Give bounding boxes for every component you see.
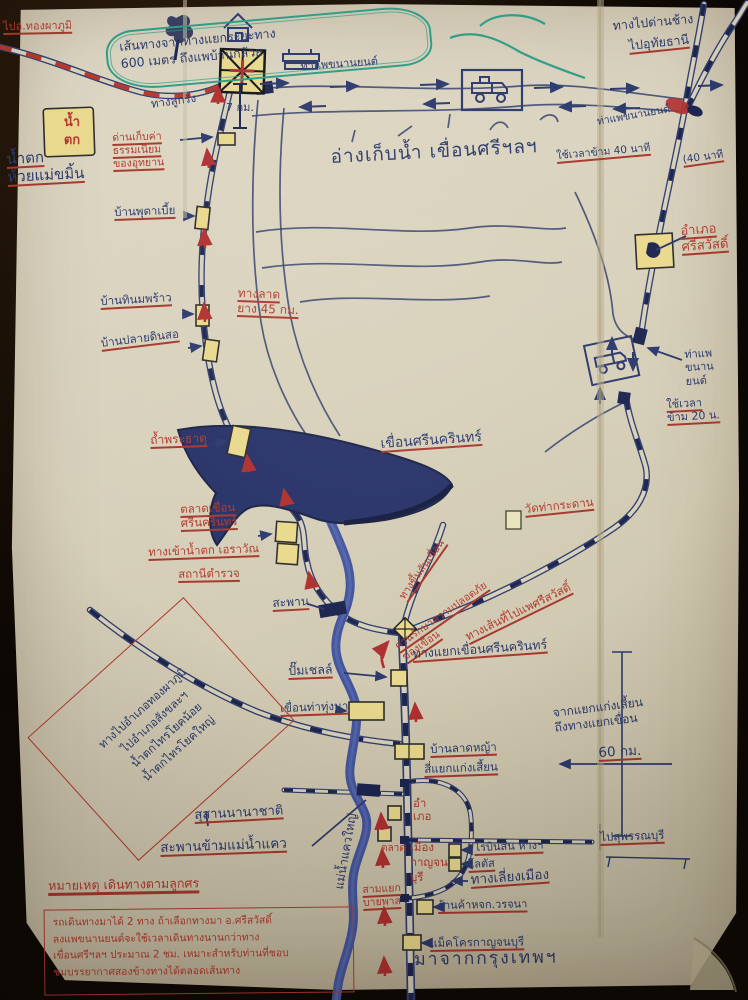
label-ferry-time-40b: (40 นาที — [682, 148, 724, 166]
label-kwai-bridge: สะพานข้ามแม่น้ำแคว — [160, 836, 287, 857]
label-dam-crest-road: ทางขึ้นสันเขื่อน — [397, 537, 448, 602]
label-to-danchang: ทางไปด่านช้าง — [612, 11, 694, 33]
label-bridge: สะพาน — [272, 594, 309, 611]
map-labels: ไปอ.ทองผาภูมิ เส้นทางจากทางแยกระยะทาง 60… — [0, 0, 748, 1000]
label-cave: ถ้ำพระธาตุ — [150, 431, 207, 448]
label-village-1: บ้านพุตาเบี้ย — [114, 203, 176, 219]
label-dam-name: เขื่อนศรีนครินทร์ — [380, 429, 482, 453]
label-mueang-kanchanaburi: เมือง กาญจน บุรี — [410, 840, 448, 885]
label-fee-checkpoint: ด่านเก็บค่า ธรรมเนียม ของอุทยาน — [112, 130, 164, 170]
label-paved-45km: ทางลาด ยาง 45 กม. — [237, 286, 300, 317]
label-city-market: ตลาด — [381, 843, 406, 855]
label-to-thongphaphum: ไปอ.ทองผาภูมิ — [3, 19, 72, 34]
label-village-3: บ้านปลายดินสอ — [100, 326, 180, 349]
label-cemetery: สุสานนานาชาติ — [194, 803, 284, 823]
label-7km: 7 กม. — [226, 101, 254, 114]
label-ban-latya: บ้านลาดหญ้า — [430, 740, 497, 756]
label-waterfall-sign: น้ำ ตก — [52, 114, 92, 149]
label-thathungna-dam: เขื่อนท่าทุ่งนา — [280, 699, 349, 715]
west-destinations-sign: ทางไปอำเภอทองผาภูมิ ไปอำเภอสังขละฯ น้ำตก… — [27, 597, 294, 861]
label-to-uthai: ไปอุทัยธานี — [628, 32, 690, 53]
label-erawan-entrance: ทางเข้าน้ำตก เอราวัณ — [148, 541, 259, 559]
label-police-station: สถานีตำรวจ — [178, 566, 240, 581]
label-ferry-pier-lower-east: ท่าแพ ขนาน ยนต์ — [684, 346, 715, 388]
label-river-name: แม่น้ำแควใหญ่ — [332, 812, 360, 890]
label-district-office: อำ เภอ — [413, 797, 431, 822]
label-waterfall-name: น้ำตก ห้วยแม่ขมิ้น — [6, 146, 85, 187]
label-robinson: โรบินสัน ห้างฯ — [474, 839, 543, 855]
label-distance-note: จากแยกแก่งเสี้ยน ถึงทางแยกเขื่อน — [552, 695, 645, 735]
label-dam-market: ตลาดเขื่อน ศรีนครินทร์ — [180, 500, 238, 530]
label-route-note: เส้นทางจากทางแยกระยะทาง 600 เมตร ถึงแพบ้… — [119, 25, 278, 72]
label-reservoir-title: อ่างเก็บน้ำ เขื่อนศรีฯลฯ — [330, 135, 538, 169]
label-from-bangkok: มาจากกรุงเทพฯ — [414, 947, 558, 971]
label-to-suphanburi: ไปสุพรรณบุรี — [600, 828, 665, 844]
label-sisawat-district: อำเภอ ศรีสวัสดิ์ — [680, 221, 729, 256]
label-kaengsian-intersection: สี่แยกแก่งเสี้ยน — [424, 759, 498, 776]
label-worajana-shop: ร้านค้าหจก.วรจนา — [438, 897, 527, 912]
label-distance-60km: 60 กม. — [598, 743, 642, 762]
label-ferry-time-20: ใช้เวลา ข้าม 20 น. — [666, 395, 720, 425]
label-wat-thakradan: วัดท่ากระดาน — [524, 495, 594, 516]
label-lotus: โลตัส — [468, 857, 495, 872]
label-ferry-pier-upper-east: ท่าแพขนานยนต์ — [596, 103, 671, 128]
label-gravel-road: ทางลูกรัง — [150, 91, 197, 111]
label-note-title: หมายเหตุ เดินทางตามลูกศร — [48, 875, 199, 896]
label-west-sign: ทางไปอำเภอทองผาภูมิ ไปอำเภอสังขละฯ น้ำตก… — [95, 665, 227, 794]
label-shell-station: ปั๊มเชลล์ — [288, 661, 333, 678]
label-village-2: บ้านทินมพร้าว — [100, 290, 172, 308]
route-note-cloud: เส้นทางจากทางแยกระยะทาง 600 เมตร ถึงแพบ้… — [104, 4, 434, 92]
label-ferry-time-40: ใช้เวลาข้าม 40 นาที — [556, 142, 651, 163]
label-bypass-junction: สามแยก บายพาส — [362, 882, 402, 910]
map-photo: ไปอ.ทองผาภูมิ เส้นทางจากทางแยกระยะทาง 60… — [0, 0, 748, 1000]
label-note-body: รถเดินทางมาได้ 2 ทาง ถ้าเลือกทางมา อ.ศรี… — [45, 907, 354, 985]
note-box: รถเดินทางมาได้ 2 ทาง ถ้าเลือกทางมา อ.ศรี… — [44, 906, 355, 995]
